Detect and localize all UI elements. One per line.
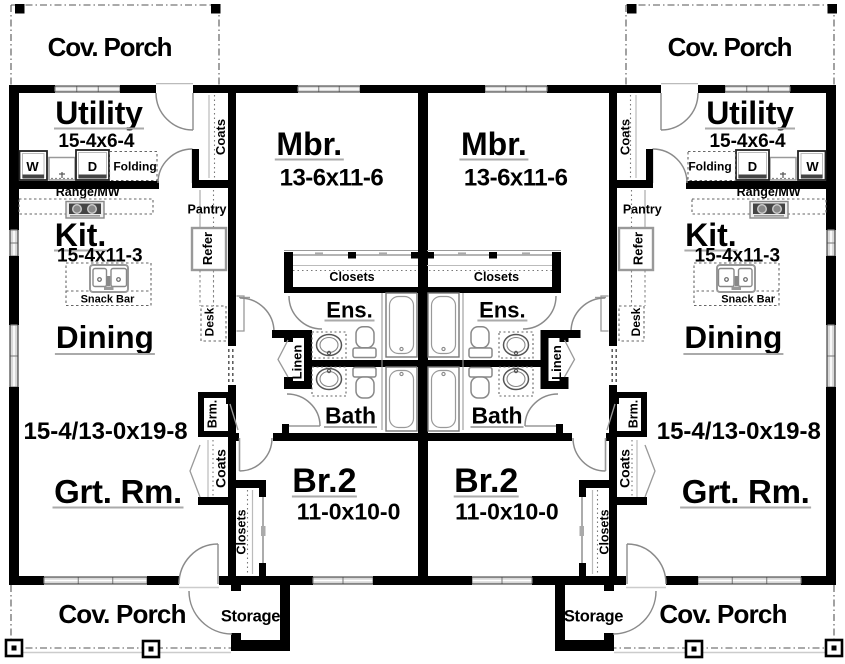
svg-text:Cov. Porch: Cov. Porch bbox=[668, 32, 792, 62]
svg-text:11-0x10-0: 11-0x10-0 bbox=[297, 499, 401, 525]
svg-text:Refer: Refer bbox=[630, 232, 645, 265]
svg-text:Br.2: Br.2 bbox=[454, 462, 518, 500]
svg-text:Dining: Dining bbox=[684, 319, 782, 355]
svg-text:15-4x11-3: 15-4x11-3 bbox=[57, 246, 143, 267]
svg-text:Ens.: Ens. bbox=[326, 298, 372, 323]
svg-text:Closets: Closets bbox=[329, 270, 374, 284]
svg-text:Utility: Utility bbox=[706, 95, 794, 131]
svg-text:Cov. Porch: Cov. Porch bbox=[48, 32, 172, 62]
svg-text:Br.2: Br.2 bbox=[292, 462, 356, 500]
svg-text:Closets: Closets bbox=[598, 509, 612, 554]
svg-text:Cov. Porch: Cov. Porch bbox=[659, 599, 786, 629]
svg-text:Storage: Storage bbox=[564, 608, 623, 626]
svg-text:Linen: Linen bbox=[549, 345, 564, 380]
svg-text:Mbr.: Mbr. bbox=[276, 126, 342, 162]
svg-text:Folding: Folding bbox=[688, 160, 731, 174]
svg-text:15-4/13-0x19-8: 15-4/13-0x19-8 bbox=[24, 418, 188, 445]
svg-text:D: D bbox=[748, 159, 757, 174]
svg-text:Storage: Storage bbox=[221, 608, 280, 626]
svg-text:Coats: Coats bbox=[617, 119, 632, 155]
svg-text:Grt. Rm.: Grt. Rm. bbox=[54, 473, 182, 510]
svg-text:Brm.: Brm. bbox=[627, 400, 641, 428]
svg-text:13-6x11-6: 13-6x11-6 bbox=[280, 165, 384, 192]
svg-text:Folding: Folding bbox=[113, 160, 156, 174]
svg-text:Dining: Dining bbox=[56, 319, 154, 355]
svg-text:11-0x10-0: 11-0x10-0 bbox=[455, 499, 559, 525]
svg-text:Linen: Linen bbox=[290, 345, 305, 380]
svg-text:Coats: Coats bbox=[617, 449, 633, 488]
svg-text:Coats: Coats bbox=[213, 449, 229, 488]
svg-text:Ens.: Ens. bbox=[479, 298, 525, 323]
svg-text:Desk: Desk bbox=[203, 307, 217, 336]
svg-text:Cov. Porch: Cov. Porch bbox=[58, 599, 185, 629]
svg-text:Bath: Bath bbox=[471, 403, 522, 429]
svg-text:Pantry: Pantry bbox=[623, 203, 662, 217]
svg-text:Utility: Utility bbox=[55, 95, 143, 131]
svg-text:W: W bbox=[806, 159, 819, 174]
svg-text:Pantry: Pantry bbox=[188, 203, 227, 217]
svg-text:13-6x11-6: 13-6x11-6 bbox=[464, 165, 568, 192]
svg-text:15-4/13-0x19-8: 15-4/13-0x19-8 bbox=[657, 418, 821, 445]
svg-text:Coats: Coats bbox=[213, 119, 228, 155]
svg-text:15-4x6-4: 15-4x6-4 bbox=[58, 131, 134, 152]
svg-text:Range/MW: Range/MW bbox=[56, 185, 120, 199]
svg-text:Closets: Closets bbox=[474, 270, 519, 284]
svg-text:Refer: Refer bbox=[200, 232, 215, 265]
svg-text:Snack Bar: Snack Bar bbox=[81, 294, 136, 306]
svg-text:Brm.: Brm. bbox=[206, 400, 220, 428]
svg-text:Desk: Desk bbox=[629, 307, 643, 336]
svg-text:Mbr.: Mbr. bbox=[461, 126, 527, 162]
svg-text:W: W bbox=[26, 159, 39, 174]
svg-text:15-4x6-4: 15-4x6-4 bbox=[709, 131, 785, 152]
svg-text:Grt. Rm.: Grt. Rm. bbox=[682, 473, 810, 510]
svg-text:15-4x11-3: 15-4x11-3 bbox=[695, 246, 781, 267]
svg-text:Snack Bar: Snack Bar bbox=[721, 294, 776, 306]
svg-text:Bath: Bath bbox=[325, 403, 376, 429]
svg-text:D: D bbox=[88, 159, 97, 174]
svg-text:Closets: Closets bbox=[235, 509, 249, 554]
svg-text:Range/MW: Range/MW bbox=[737, 185, 801, 199]
